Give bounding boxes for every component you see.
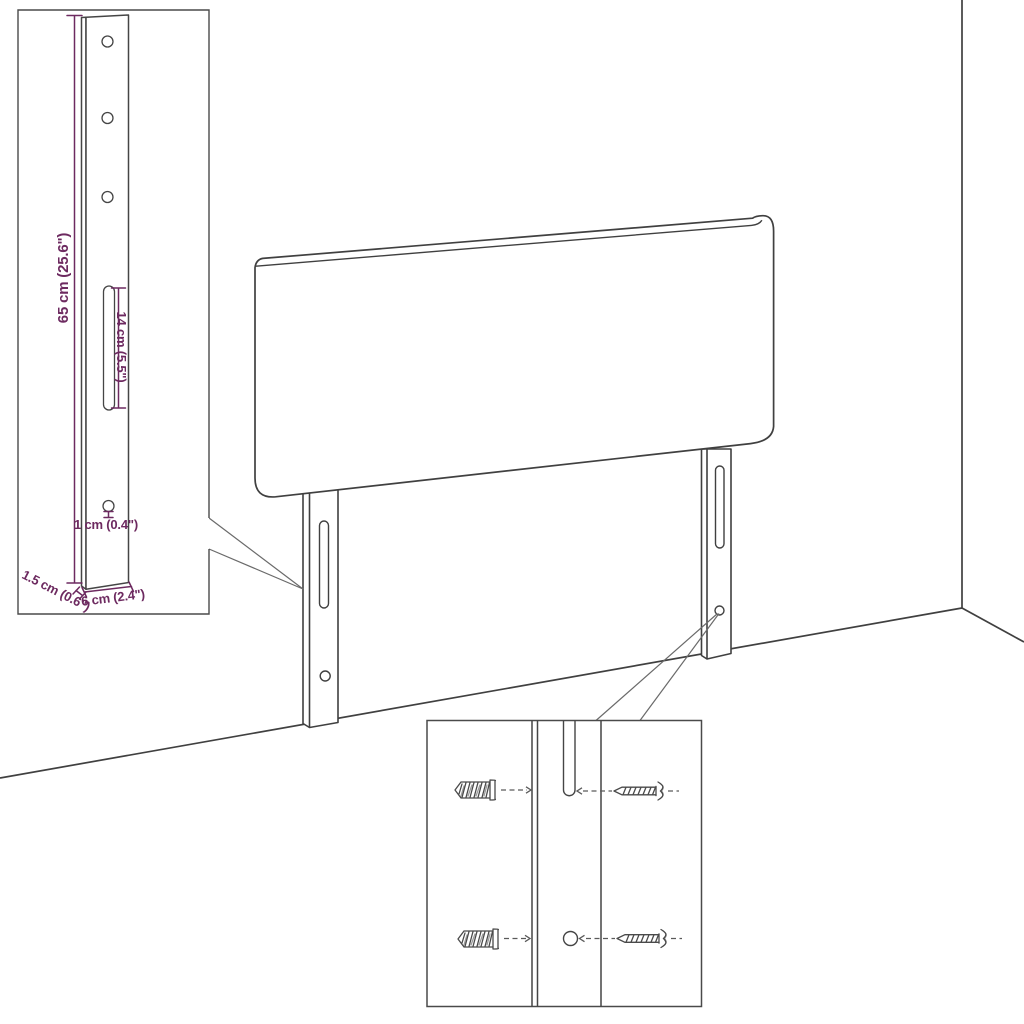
bracket-callout-line-upper [209,518,303,589]
bracket-callout-line-lower [209,549,303,589]
right-leg-hole [715,606,724,615]
mounting-inset-box [427,721,702,1007]
dim-height-label: 65 cm (25.6") [55,233,72,324]
bracket-bottom-hole [103,501,114,512]
headboard-left-leg [303,489,338,728]
mounting-callout-line-right [640,614,719,721]
floor-line-right [962,608,1024,642]
detail-callout-lines [209,518,719,721]
headboard-outline [255,216,774,497]
bracket-screw-hole-2 [102,113,113,124]
dim-slot-label: 14 cm (5.5") [114,312,129,383]
mounting-detail-inset [427,721,702,1007]
bracket-screw-hole-1 [102,36,113,47]
assembly-diagram-canvas: 65 cm (25.6") 14 cm (5.5") 1 cm (0.4") 1… [0,0,1024,1024]
right-leg-slot [716,466,725,548]
bracket-slot [104,286,115,410]
bracket-screw-hole-3 [102,192,113,203]
headboard-right-leg [702,449,732,659]
bracket-side-view [82,15,129,589]
product-diagram-page: 65 cm (25.6") 14 cm (5.5") 1 cm (0.4") 1… [0,0,1024,1024]
left-leg-hole [320,671,330,681]
dim-hole-label: 1 cm (0.4") [74,517,138,532]
bracket-detail-inset: 65 cm (25.6") 14 cm (5.5") 1 cm (0.4") 1… [18,10,209,614]
left-leg-slot [320,521,329,608]
mounting-callout-line-left [596,614,718,721]
headboard-panel [255,216,774,497]
